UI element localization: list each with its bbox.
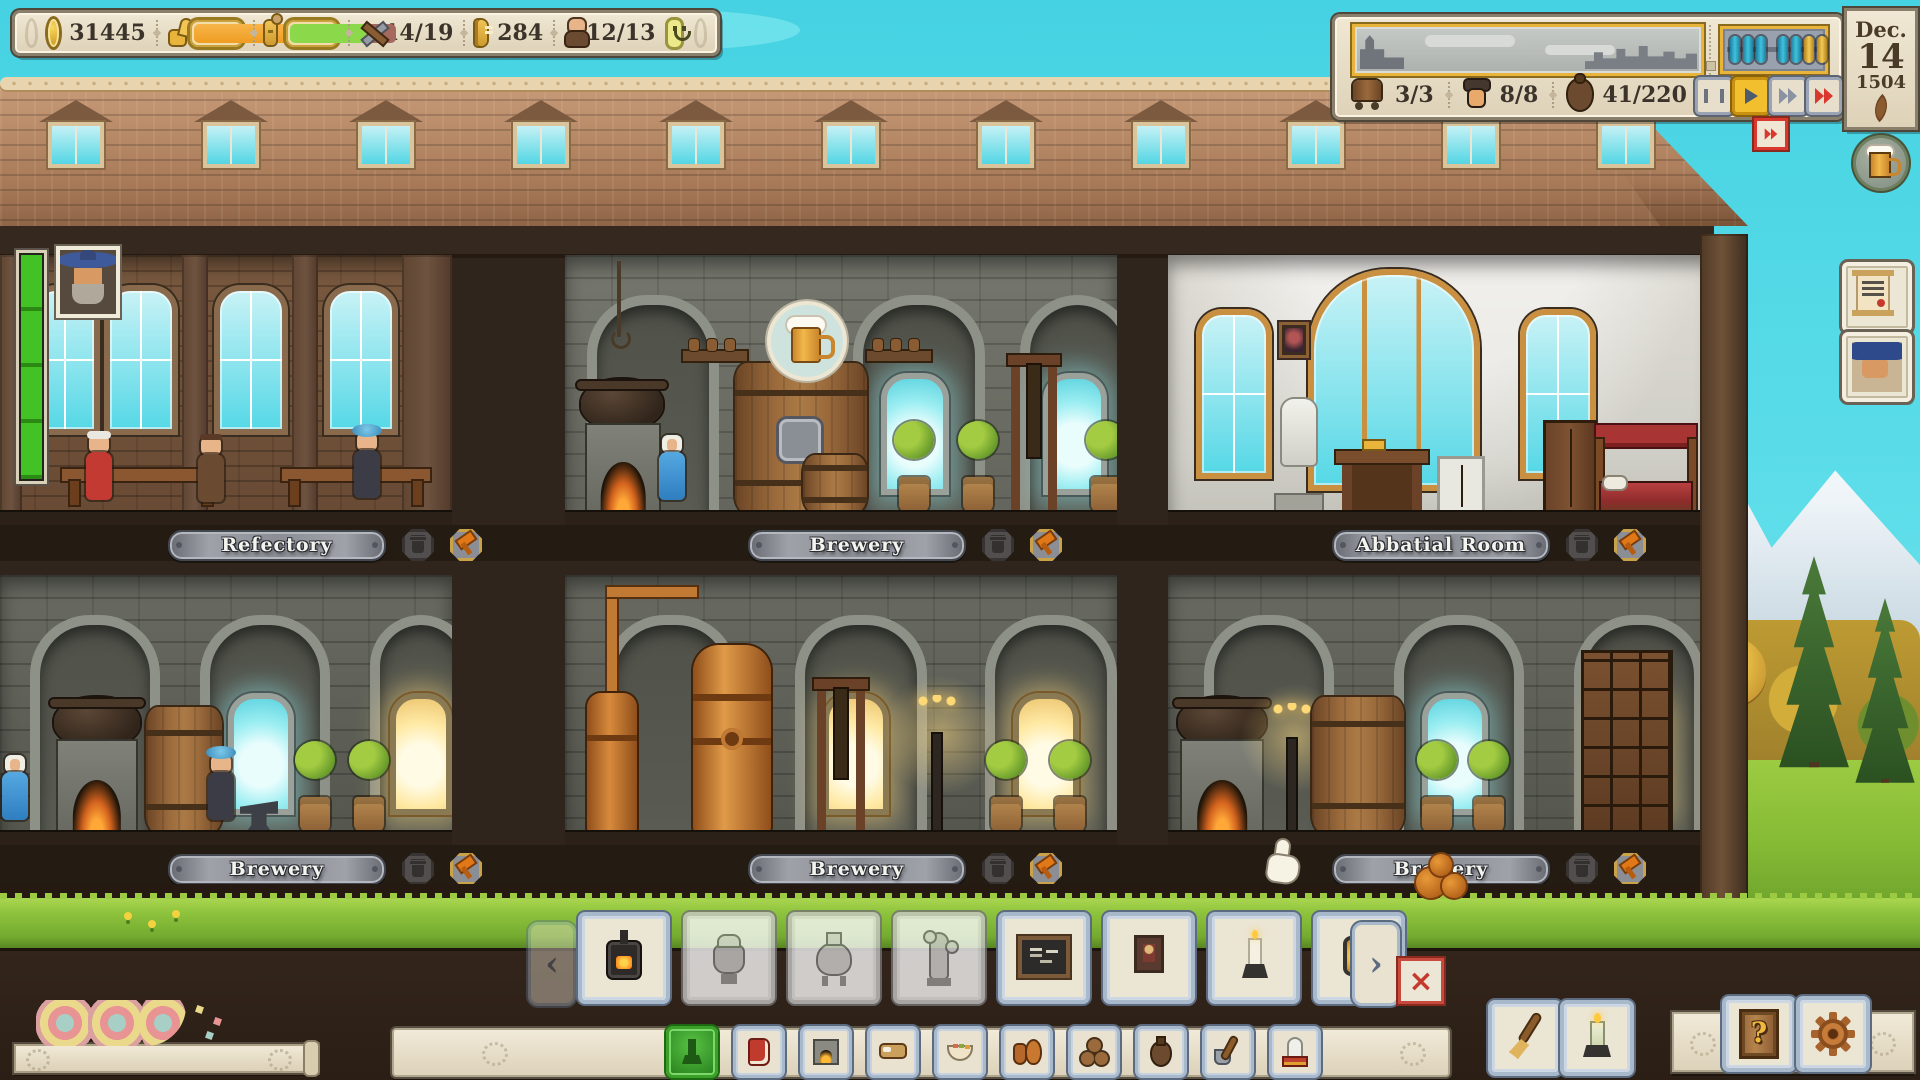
- toolbar-item-blackboard[interactable]: [998, 912, 1090, 1004]
- chevron-left-icon: ‹: [545, 944, 559, 984]
- room-abbatial[interactable]: [1168, 255, 1714, 525]
- furniture-toolbar-items: [578, 912, 1405, 1004]
- broom-icon: [1505, 1015, 1545, 1061]
- nobleman-portrait-icon: [1852, 342, 1902, 392]
- wardrobe[interactable]: [1546, 423, 1594, 513]
- shelf: [867, 351, 931, 361]
- max-speed-icon: [1815, 88, 1833, 104]
- toolbar-item-still-tower[interactable]: [893, 912, 985, 1004]
- hop-plant: [1049, 741, 1091, 833]
- trash-icon[interactable]: [1566, 529, 1598, 561]
- gear-icon: [1811, 1012, 1855, 1056]
- menu-brewing-button[interactable]: [1001, 1026, 1053, 1078]
- flourish-icon: [482, 1042, 508, 1066]
- blackboard-icon: [1018, 930, 1070, 986]
- dormer-glass: [52, 126, 100, 164]
- dormer-glass: [672, 126, 720, 164]
- abacus-bead-teal: [1756, 36, 1766, 63]
- hop-plant: [1085, 421, 1117, 513]
- dormer-glass: [1602, 126, 1650, 164]
- flourish-icon: [1870, 1032, 1896, 1056]
- candelabra[interactable]: [917, 695, 957, 833]
- trash-icon[interactable]: [982, 529, 1014, 561]
- dormer-window: [199, 100, 263, 170]
- divider: [348, 20, 350, 46]
- shelf: [683, 351, 747, 361]
- guest-icon: [1464, 80, 1490, 110]
- help-book-icon: ?: [1739, 1010, 1779, 1058]
- progress-panel: 3/3 8/8 41/220: [1332, 14, 1844, 120]
- room-label: Brewery: [810, 534, 905, 556]
- pause-button[interactable]: [1695, 77, 1733, 115]
- edit-room-button[interactable]: [450, 853, 482, 885]
- copper-still[interactable]: [587, 693, 637, 833]
- menu-furnishings-button[interactable]: [666, 1026, 718, 1078]
- apothecary-cabinet[interactable]: [1584, 653, 1670, 833]
- flourish-icon: [1690, 1032, 1716, 1056]
- abbey-silhouette-icon: [1360, 33, 1404, 69]
- abacus-bead-teal: [1730, 36, 1740, 63]
- date-year: 1504: [1847, 72, 1915, 93]
- contract-button[interactable]: [1842, 262, 1912, 332]
- tools-icon: [360, 19, 374, 47]
- flourish-icon: [1400, 1042, 1426, 1066]
- still-pipe: [607, 587, 617, 707]
- cauldron[interactable]: [54, 697, 140, 747]
- hand-cursor: [1262, 840, 1308, 894]
- dormer-window: [974, 100, 1038, 170]
- still-tower-icon: [913, 930, 965, 986]
- monastery-building: Refectory Brewery Abbatial Room Brewery: [0, 84, 1748, 910]
- divider: [553, 20, 555, 46]
- menu-food-button[interactable]: [934, 1026, 986, 1078]
- trash-icon[interactable]: [402, 853, 434, 885]
- food-icon: [945, 1037, 975, 1067]
- menu-dormitory-button[interactable]: [867, 1026, 919, 1078]
- kitchen-icon: [811, 1037, 841, 1067]
- divider: [1552, 82, 1554, 108]
- dormitory-icon: [878, 1037, 908, 1067]
- menu-decorations-button[interactable]: [1269, 1026, 1321, 1078]
- abacus-bead-teal: [1791, 36, 1801, 63]
- window: [324, 285, 398, 435]
- divider: [463, 20, 465, 46]
- dormer-glass: [1292, 126, 1340, 164]
- build-menu-buttons: [666, 1026, 1321, 1078]
- window-lit: [228, 693, 294, 815]
- building-right-wall: [1700, 234, 1748, 994]
- storage-value: 41/220: [1602, 82, 1687, 108]
- reputation-fill: [194, 24, 300, 43]
- date-day: 14: [1847, 42, 1915, 72]
- wall-painting: [1282, 325, 1306, 355]
- illuminated-ornament: [36, 1000, 186, 1046]
- brew-kettle-icon: [808, 930, 860, 986]
- gold-window: [1196, 309, 1272, 479]
- candelabra[interactable]: [1272, 703, 1312, 833]
- room-brewery-br[interactable]: [1168, 575, 1714, 845]
- room-label: Refectory: [221, 534, 332, 556]
- menu-kitchen-button[interactable]: [800, 1026, 852, 1078]
- character-guest[interactable]: [352, 433, 382, 511]
- settings-button[interactable]: [1796, 996, 1870, 1072]
- roof-beam: [0, 226, 1714, 258]
- skip-event-button[interactable]: [1754, 118, 1788, 150]
- play-button[interactable]: [1732, 77, 1770, 115]
- max-speed-button[interactable]: [1806, 77, 1842, 115]
- edit-room-button[interactable]: [1614, 529, 1646, 561]
- room-brewery-bl[interactable]: [0, 575, 452, 845]
- sack-icon: [1568, 80, 1592, 110]
- menu-cleaning-button[interactable]: [1202, 1026, 1254, 1078]
- question-mark: ?: [1739, 1016, 1779, 1049]
- cellar-icon: [1079, 1037, 1109, 1067]
- close-icon: ×: [1408, 964, 1433, 999]
- hop-plant: [1468, 741, 1510, 833]
- light-tool-button[interactable]: [1560, 1000, 1634, 1076]
- carts-value: 3/3: [1395, 82, 1434, 108]
- cloud: [1425, 35, 1515, 47]
- abacus-bead-gold: [1804, 36, 1814, 63]
- toolbar-prev-button[interactable]: ‹: [528, 922, 576, 1006]
- candle-icon: [1577, 1015, 1617, 1061]
- furnace[interactable]: [58, 741, 136, 833]
- pumpkin-pile: [1410, 850, 1480, 906]
- small-barrel[interactable]: [803, 455, 867, 513]
- reputation-bar: [190, 20, 243, 47]
- toolbar-item-mash-tun[interactable]: [683, 912, 775, 1004]
- dormer-glass: [982, 126, 1030, 164]
- mash-tun-icon: [703, 930, 755, 986]
- character-guest[interactable]: [206, 755, 236, 833]
- dormer-window: [819, 100, 883, 170]
- cloud: [1545, 45, 1615, 55]
- abacus-bead-teal: [1778, 36, 1788, 63]
- hop-plant: [957, 421, 999, 513]
- toolbar-close-button[interactable]: ×: [1398, 958, 1444, 1004]
- nun-statue[interactable]: [1274, 399, 1324, 513]
- fast-forward-icon: [1779, 88, 1797, 104]
- dormer-window: [509, 100, 573, 170]
- abacus-tracker: [1723, 29, 1825, 71]
- coin-icon: [48, 19, 59, 47]
- monks-value: 12/13: [586, 20, 655, 46]
- play-icon: [1745, 88, 1758, 104]
- room-brewery-top[interactable]: [565, 255, 1117, 525]
- room-brewery-bm[interactable]: [565, 575, 1117, 845]
- white-cabinet[interactable]: [1440, 459, 1482, 513]
- trash-icon[interactable]: [982, 853, 1014, 885]
- fast-forward-button[interactable]: [1769, 77, 1807, 115]
- divider: [253, 20, 255, 46]
- hop-plant: [1416, 741, 1458, 833]
- room-label-plate: Brewery: [168, 854, 386, 885]
- dormer-glass: [1137, 126, 1185, 164]
- floor-band-upper: Refectory Brewery Abbatial Room: [0, 525, 1714, 561]
- dormer-glass: [517, 126, 565, 164]
- pulley-hook: [617, 261, 621, 337]
- hop-plant: [348, 741, 390, 833]
- window-lit: [390, 693, 452, 815]
- edit-room-button[interactable]: [1614, 853, 1646, 885]
- room-label: Brewery: [810, 858, 905, 880]
- ledger-icon: [475, 20, 487, 46]
- thumbs-up-icon: [168, 20, 180, 46]
- visitor-request-button[interactable]: [1842, 332, 1912, 402]
- edit-room-button[interactable]: [450, 529, 482, 561]
- cauldron[interactable]: [581, 379, 663, 429]
- edit-room-button[interactable]: [1030, 529, 1062, 561]
- decorations-icon: [1280, 1037, 1310, 1067]
- dormer-window: [354, 100, 418, 170]
- trash-icon[interactable]: [402, 529, 434, 561]
- toolbar-item-icon-painting[interactable]: [1103, 912, 1195, 1004]
- sweep-tool-button[interactable]: [1488, 1000, 1562, 1076]
- beer-ready-bubble[interactable]: [771, 305, 843, 377]
- flower: [148, 920, 156, 928]
- dormer-glass: [362, 126, 410, 164]
- canopy-bed[interactable]: [1596, 425, 1696, 513]
- flower: [172, 910, 180, 918]
- game-screen: Refectory Brewery Abbatial Room Brewery: [0, 0, 1920, 1080]
- library-icon: [744, 1037, 774, 1067]
- divider: [1448, 82, 1450, 108]
- room-label: Abbatial Room: [1356, 534, 1526, 556]
- hop-plant: [294, 741, 336, 833]
- skip-icon: [1765, 128, 1778, 139]
- toolbar-item-candle-holder[interactable]: [1208, 912, 1300, 1004]
- coins-value: 31445: [69, 20, 146, 46]
- divider: [156, 20, 158, 46]
- happiness-icon: [665, 17, 683, 50]
- character-nun[interactable]: [657, 435, 687, 513]
- flower: [124, 912, 132, 920]
- bottom-left-scrollbar: [14, 1044, 318, 1073]
- brewing-icon: [1012, 1037, 1042, 1067]
- ledger-value: 284: [497, 20, 543, 46]
- room-label-plate: Brewery: [748, 530, 966, 561]
- dormer-window: [1129, 100, 1193, 170]
- dormer-window: [44, 100, 108, 170]
- goods-icon: [1146, 1037, 1176, 1067]
- room-label: Brewery: [230, 858, 325, 880]
- abacus-bead-teal: [1743, 36, 1753, 63]
- date-panel: Dec. 14 1504: [1844, 8, 1918, 130]
- monk-icon: [565, 19, 576, 47]
- still-pipe: [607, 587, 697, 597]
- dormer-glass: [827, 126, 875, 164]
- window: [214, 285, 288, 435]
- character-cook[interactable]: [84, 435, 114, 513]
- room-label-plate: Brewery: [748, 854, 966, 885]
- candle-holder-icon: [1228, 930, 1280, 986]
- help-button[interactable]: ?: [1722, 996, 1796, 1072]
- visitor-portrait[interactable]: [56, 246, 120, 318]
- toolbar-item-stove[interactable]: [578, 912, 670, 1004]
- dormer-glass: [207, 126, 255, 164]
- guests-value: 8/8: [1500, 82, 1539, 108]
- pause-icon: [1704, 89, 1724, 103]
- barrel[interactable]: [1312, 697, 1404, 833]
- abacus-bead-gold: [1817, 36, 1827, 63]
- hop-plant: [985, 741, 1027, 833]
- capacity-bar: [286, 20, 339, 47]
- trash-icon[interactable]: [1566, 853, 1598, 885]
- contract-scroll-icon: [1858, 276, 1888, 310]
- visitor-patience-bar: [16, 250, 47, 484]
- scroll-curl-icon: [25, 18, 38, 48]
- toolbar-next-button[interactable]: ›: [1352, 922, 1400, 1006]
- toolbar-item-brew-kettle[interactable]: [788, 912, 880, 1004]
- dormer-glass: [1447, 126, 1495, 164]
- furnace[interactable]: [587, 425, 659, 513]
- scroll-curl-icon: [694, 18, 707, 48]
- beer-notification-badge[interactable]: [1856, 138, 1906, 188]
- capacity-icon: [265, 21, 276, 45]
- stove-icon: [598, 930, 650, 986]
- copper-tank[interactable]: [693, 645, 771, 833]
- season-leaf-icon: [1867, 94, 1895, 122]
- fame-progress-bar: [1355, 27, 1701, 73]
- hop-plant: [893, 421, 935, 513]
- room-label-plate: Refectory: [168, 530, 386, 561]
- menu-goods-button[interactable]: [1135, 1026, 1187, 1078]
- character-nun[interactable]: [0, 755, 30, 833]
- menu-library-button[interactable]: [733, 1026, 785, 1078]
- patience-fill: [21, 255, 42, 479]
- menu-cellar-button[interactable]: [1068, 1026, 1120, 1078]
- dormer-window: [664, 100, 728, 170]
- wooden-press[interactable]: [1011, 355, 1057, 513]
- chevron-right-icon: ›: [1369, 944, 1383, 984]
- resources-panel: 31445 14/19 284 12/13: [12, 10, 720, 56]
- edit-room-button[interactable]: [1030, 853, 1062, 885]
- writing-desk[interactable]: [1336, 451, 1428, 513]
- furnishings-icon: [677, 1037, 707, 1067]
- cleaning-icon: [1213, 1037, 1243, 1067]
- build-menu-bar: [392, 1028, 1450, 1077]
- flourish-icon: [26, 1049, 50, 1071]
- icon-painting-icon: [1123, 930, 1175, 986]
- wooden-press[interactable]: [817, 679, 865, 833]
- room-label-plate: Abbatial Room: [1332, 530, 1550, 561]
- character-monk[interactable]: [196, 437, 226, 515]
- flourish-icon: [268, 1049, 292, 1071]
- cart-icon: [1351, 80, 1385, 110]
